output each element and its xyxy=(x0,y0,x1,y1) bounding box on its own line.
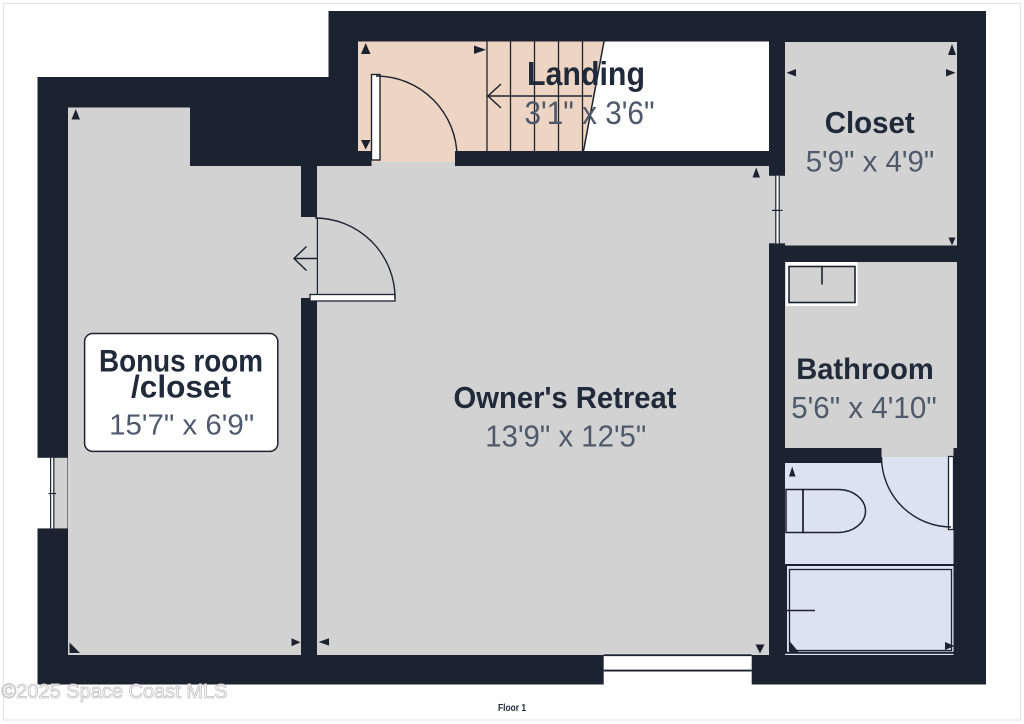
svg-text:3'1" x 3'6": 3'1" x 3'6" xyxy=(525,95,655,131)
svg-text:©2025 Space Coast MLS: ©2025 Space Coast MLS xyxy=(2,681,228,703)
svg-text:Bathroom: Bathroom xyxy=(796,353,934,386)
svg-text:/closet: /closet xyxy=(131,369,232,405)
svg-text:5'6" x 4'10": 5'6" x 4'10" xyxy=(791,390,937,425)
svg-text:Owner's Retreat: Owner's Retreat xyxy=(454,380,677,415)
svg-text:Floor 1: Floor 1 xyxy=(498,703,526,714)
svg-text:Landing: Landing xyxy=(527,55,645,92)
svg-text:5'9" x 4'9": 5'9" x 4'9" xyxy=(806,146,935,179)
svg-text:Closet: Closet xyxy=(825,105,915,140)
svg-text:15'7" x 6'9": 15'7" x 6'9" xyxy=(109,410,254,442)
svg-text:13'9" x 12'5": 13'9" x 12'5" xyxy=(485,419,646,454)
